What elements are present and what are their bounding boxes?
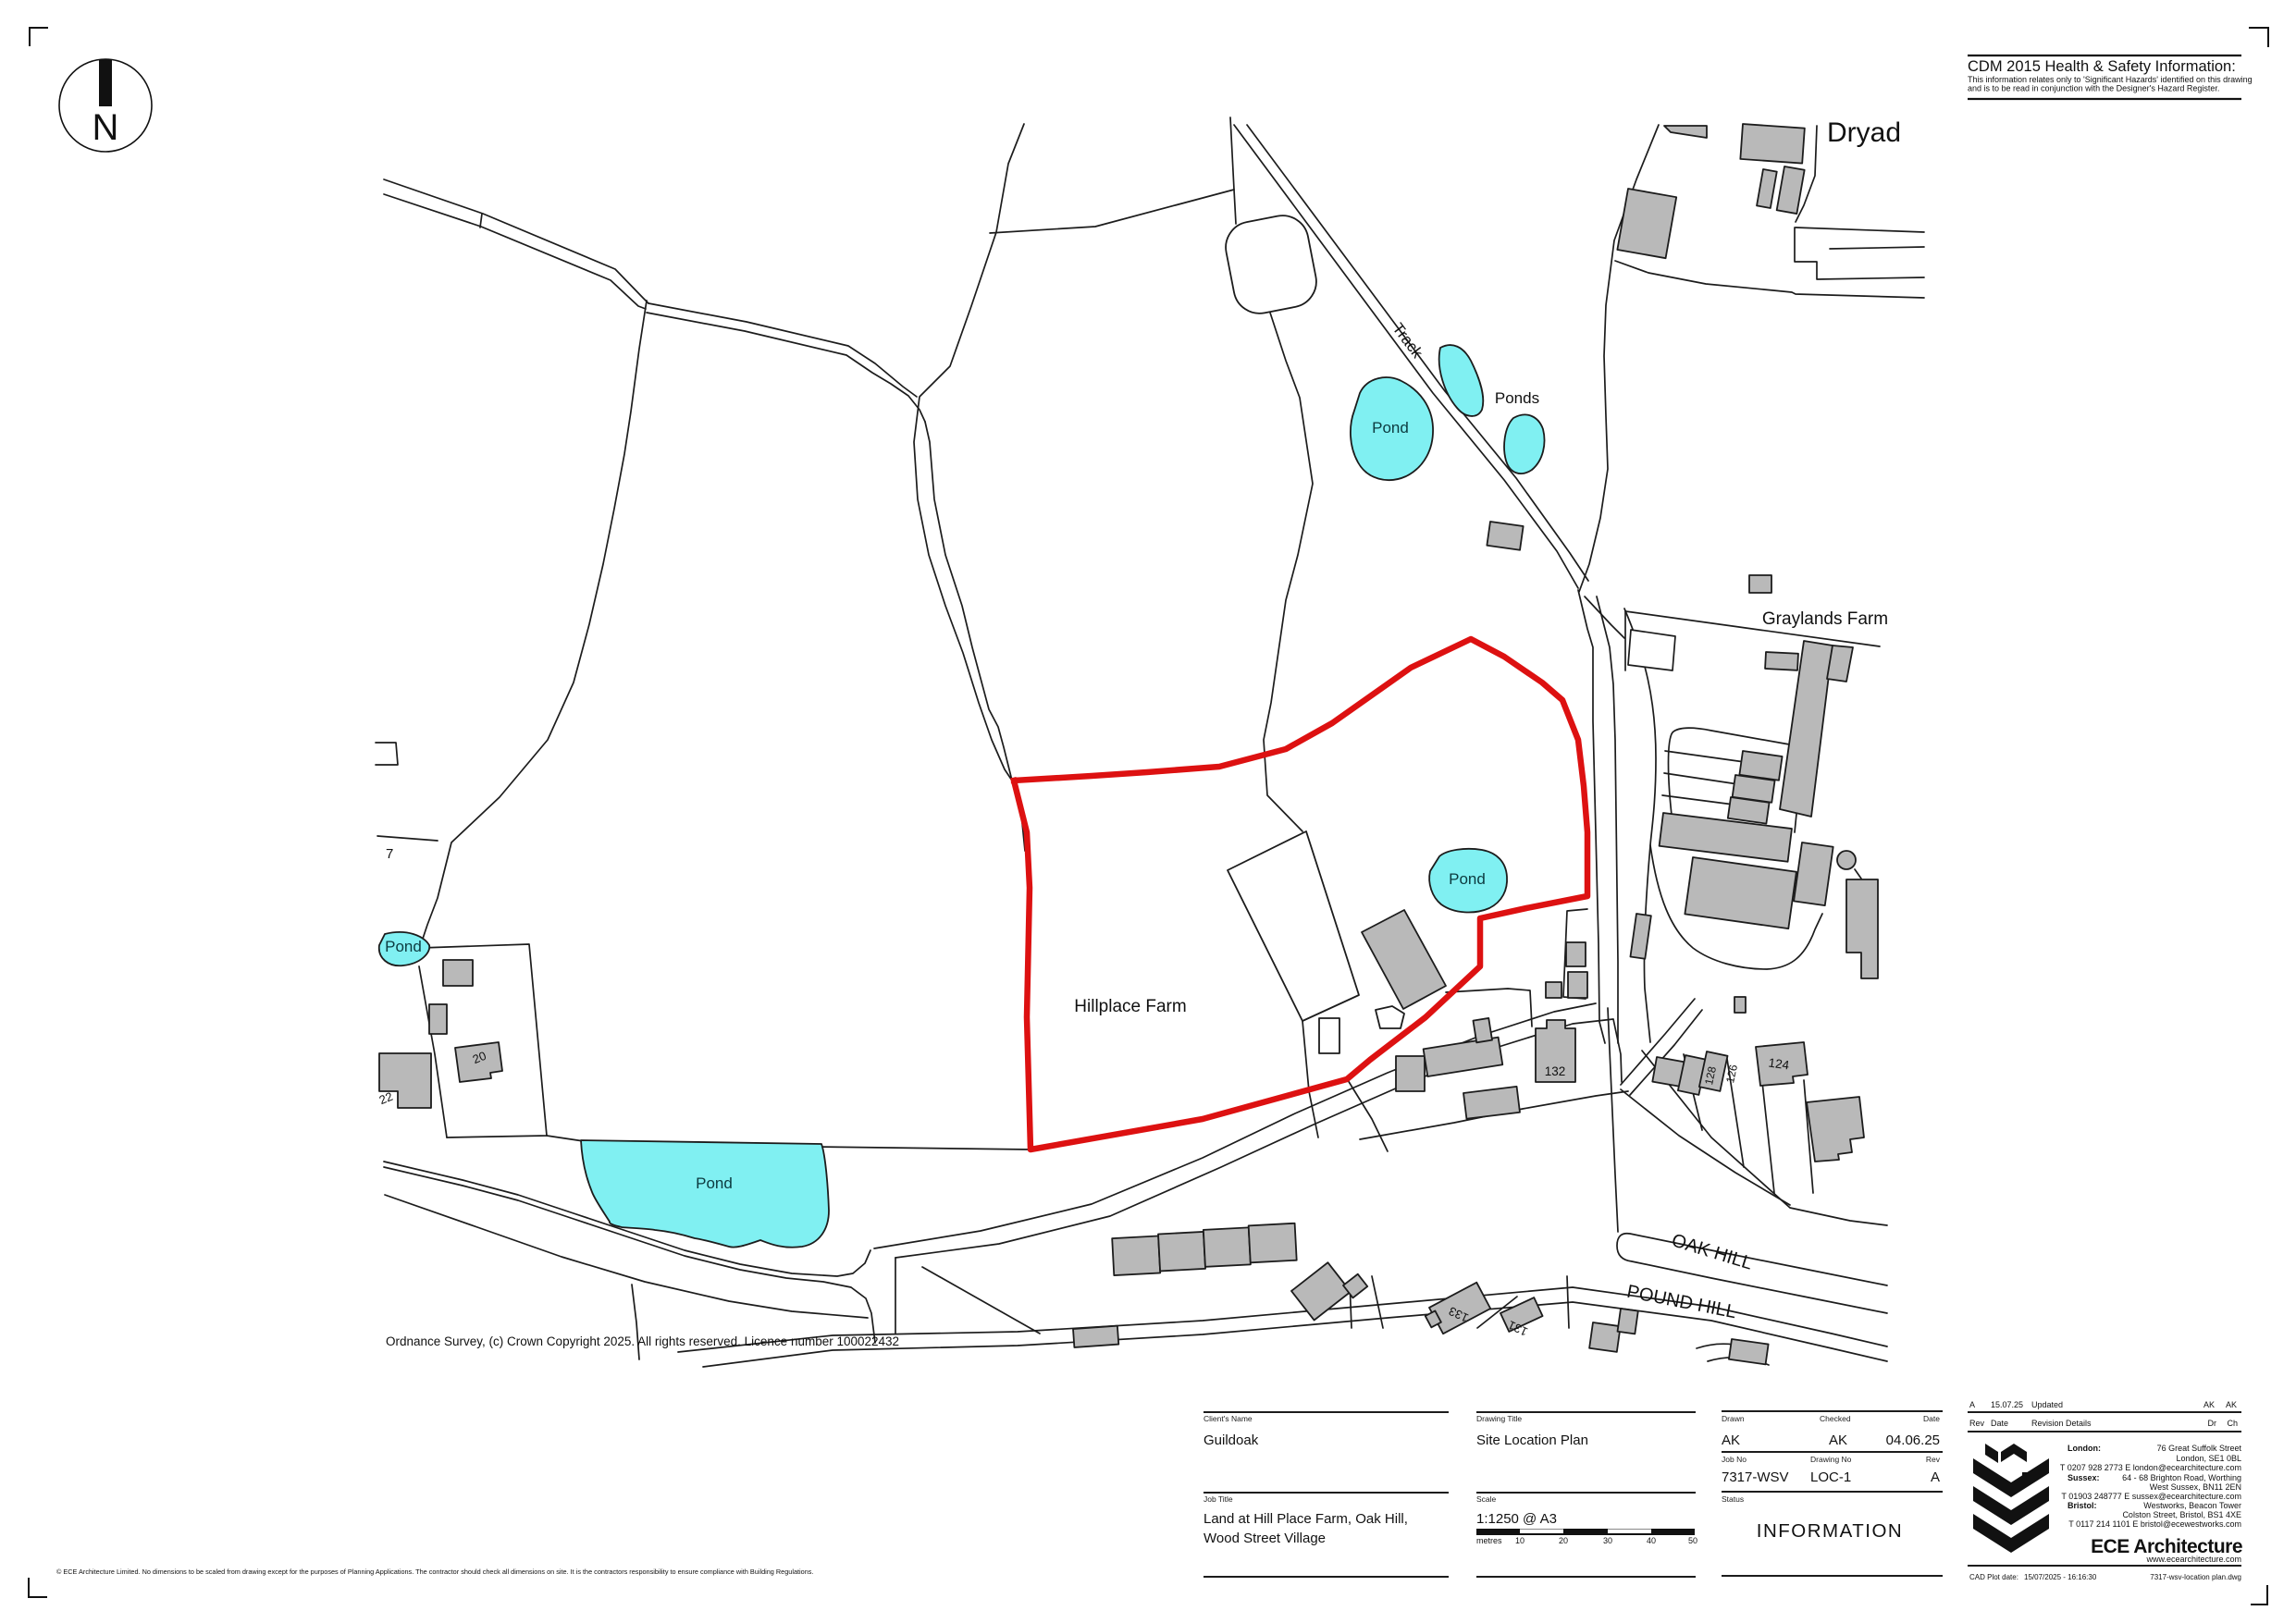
svg-text:Dr: Dr	[2208, 1419, 2217, 1428]
svg-text:INFORMATION: INFORMATION	[1757, 1520, 1903, 1542]
svg-text:132: 132	[1545, 1064, 1566, 1078]
svg-text:Wood Street Village: Wood Street Village	[1204, 1531, 1326, 1546]
svg-text:AK: AK	[2226, 1400, 2237, 1409]
svg-text:metres: metres	[1476, 1536, 1502, 1545]
svg-text:1:1250 @ A3: 1:1250 @ A3	[1476, 1511, 1557, 1527]
svg-text:15.07.25: 15.07.25	[1991, 1400, 2023, 1409]
svg-text:Pond: Pond	[1449, 870, 1486, 888]
svg-text:Hillplace Farm: Hillplace Farm	[1074, 997, 1186, 1016]
svg-text:Pond: Pond	[1372, 419, 1409, 436]
svg-text:64 - 68 Brighton Road, Worthin: 64 - 68 Brighton Road, Worthing	[2122, 1473, 2241, 1482]
svg-text:Land at Hill Place Farm, Oak H: Land at Hill Place Farm, Oak Hill,	[1204, 1511, 1408, 1527]
svg-text:40: 40	[1647, 1536, 1656, 1545]
svg-text:20: 20	[1559, 1536, 1568, 1545]
svg-text:This information relates only: This information relates only to 'Signif…	[1968, 75, 2253, 84]
svg-text:AK: AK	[1722, 1432, 1740, 1448]
svg-text:30: 30	[1603, 1536, 1612, 1545]
svg-text:Guildoak: Guildoak	[1204, 1432, 1259, 1448]
svg-text:London:: London:	[2068, 1444, 2101, 1453]
svg-text:CDM 2015 Health & Safety Infor: CDM 2015 Health & Safety Information:	[1968, 58, 2236, 75]
svg-text:Checked: Checked	[1820, 1414, 1851, 1423]
svg-text:T 01903 248777 E sussex@ecearc: T 01903 248777 E sussex@ecearchitecture.…	[2061, 1492, 2241, 1501]
svg-text:Site Location Plan: Site Location Plan	[1476, 1432, 1588, 1448]
svg-text:LOC-1: LOC-1	[1810, 1469, 1851, 1485]
svg-text:Client's Name: Client's Name	[1204, 1414, 1253, 1423]
svg-text:Sussex:: Sussex:	[2068, 1473, 2100, 1482]
svg-text:West Sussex, BN11 2EN: West Sussex, BN11 2EN	[2150, 1482, 2241, 1492]
svg-text:© ECE Architecture Limited. No: © ECE Architecture Limited. No dimension…	[56, 1568, 813, 1576]
svg-text:Pond: Pond	[385, 938, 422, 955]
svg-text:Pond: Pond	[696, 1174, 733, 1192]
svg-text:Job No: Job No	[1722, 1455, 1747, 1464]
svg-text:N: N	[93, 107, 119, 148]
svg-text:7: 7	[386, 846, 393, 862]
svg-text:Drawing Title: Drawing Title	[1476, 1414, 1522, 1423]
svg-text:AK: AK	[1829, 1432, 1847, 1448]
svg-text:Ponds: Ponds	[1495, 389, 1539, 407]
svg-text:and is to be read in conjuncti: and is to be read in conjunction with th…	[1968, 84, 2219, 93]
svg-text:7317-WSV: 7317-WSV	[1722, 1469, 1789, 1485]
svg-text:A: A	[1931, 1469, 1940, 1485]
svg-text:10: 10	[1515, 1536, 1524, 1545]
svg-text:T 0207 928 2773 E london@ecea: T 0207 928 2773 E london@ecearchitecture…	[2060, 1463, 2241, 1472]
svg-text:76 Great Suffolk Street: 76 Great Suffolk Street	[2157, 1444, 2242, 1453]
svg-text:04.06.25: 04.06.25	[1886, 1432, 1940, 1448]
svg-text:Drawing No: Drawing No	[1810, 1455, 1852, 1464]
svg-text:Updated: Updated	[2031, 1400, 2063, 1409]
svg-text:London, SE1 0BL: London, SE1 0BL	[2176, 1454, 2241, 1463]
svg-text:124: 124	[1768, 1056, 1791, 1073]
svg-text:AK: AK	[2203, 1400, 2215, 1409]
svg-text:T 0117 214 1101 E bristol@ecew: T 0117 214 1101 E bristol@ecewestworks.c…	[2068, 1519, 2241, 1529]
svg-text:Ordnance Survey, (c) Crown Cop: Ordnance Survey, (c) Crown Copyright 202…	[386, 1334, 899, 1348]
svg-text:CAD Plot date:: CAD Plot date:	[1969, 1573, 2018, 1581]
svg-text:Graylands Farm: Graylands Farm	[1762, 609, 1888, 629]
svg-text:Job Title: Job Title	[1204, 1494, 1233, 1504]
svg-text:7317-wsv-location plan.dwg: 7317-wsv-location plan.dwg	[2150, 1573, 2241, 1581]
svg-text:Dryad: Dryad	[1827, 117, 1901, 148]
svg-text:Rev: Rev	[1926, 1455, 1941, 1464]
svg-text:Scale: Scale	[1476, 1494, 1497, 1504]
svg-text:Rev: Rev	[1969, 1419, 1985, 1428]
svg-text:Bristol:: Bristol:	[2068, 1501, 2097, 1510]
svg-text:15/07/2025 - 16:16:30: 15/07/2025 - 16:16:30	[2024, 1573, 2097, 1581]
svg-text:50: 50	[1688, 1536, 1697, 1545]
svg-text:Drawn: Drawn	[1722, 1414, 1745, 1423]
svg-text:www.ecearchitecture.com: www.ecearchitecture.com	[2145, 1555, 2241, 1564]
svg-text:Westworks, Beacon Tower: Westworks, Beacon Tower	[2143, 1501, 2241, 1510]
svg-text:Status: Status	[1722, 1494, 1744, 1504]
svg-text:Ch: Ch	[2227, 1419, 2238, 1428]
svg-text:Colston Street, Bristol, BS1 4: Colston Street, Bristol, BS1 4XE	[2122, 1510, 2241, 1519]
svg-text:Date: Date	[1923, 1414, 1940, 1423]
svg-text:Date: Date	[1991, 1419, 2008, 1428]
svg-text:Revision Details: Revision Details	[2031, 1419, 2092, 1428]
svg-text:A: A	[1969, 1400, 1975, 1409]
